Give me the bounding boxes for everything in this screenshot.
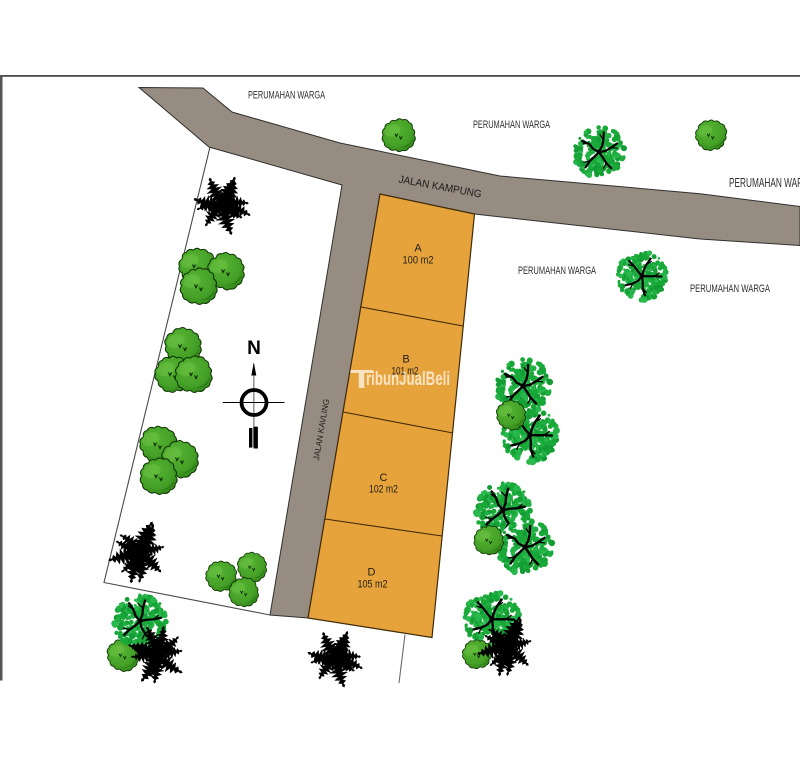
svg-text:PERUMAHAN WARGA: PERUMAHAN WARGA (518, 265, 596, 277)
svg-text:D: D (368, 567, 376, 579)
svg-text:A: A (414, 243, 422, 255)
svg-text:PERUMAHAN WARGA: PERUMAHAN WARGA (690, 283, 770, 295)
svg-text:B: B (402, 354, 409, 366)
svg-text:PERUMAHAN WARGA: PERUMAHAN WARGA (729, 176, 800, 190)
svg-text:100 m2: 100 m2 (403, 255, 434, 267)
svg-text:101 m2: 101 m2 (392, 366, 419, 378)
svg-text:C: C (380, 472, 388, 484)
svg-text:PERUMAHAN WARGA: PERUMAHAN WARGA (473, 119, 550, 131)
svg-text:105 m2: 105 m2 (358, 579, 388, 591)
svg-text:PERUMAHAN WARGA: PERUMAHAN WARGA (248, 90, 325, 102)
svg-text:102 m2: 102 m2 (369, 484, 398, 496)
svg-text:N: N (247, 338, 261, 359)
